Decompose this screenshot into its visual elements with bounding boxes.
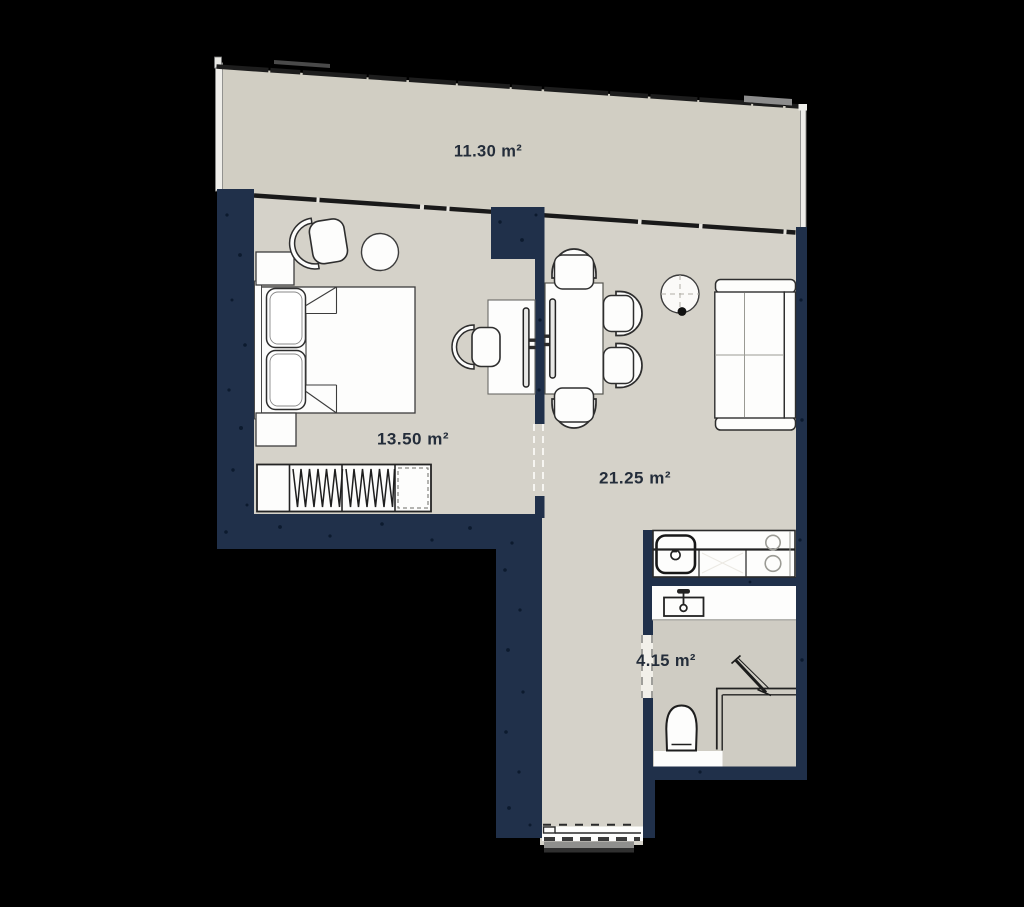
svg-text:4.15 m²: 4.15 m²: [636, 652, 696, 670]
svg-text:11.30 m²: 11.30 m²: [454, 143, 522, 161]
svg-text:13.50 m²: 13.50 m²: [377, 430, 449, 449]
svg-text:21.25 m²: 21.25 m²: [599, 469, 671, 488]
